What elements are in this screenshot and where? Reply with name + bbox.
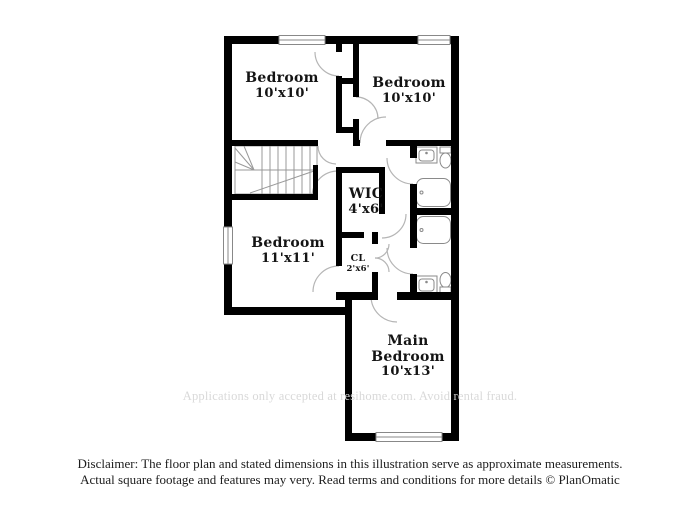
room-name: Bedroom [251, 236, 325, 252]
room-label-bedroom-middle-left: Bedroom 11'x11' [251, 236, 325, 266]
window [418, 36, 450, 45]
disclaimer: Disclaimer: The floor plan and stated di… [0, 456, 700, 488]
room-name: WIC [348, 187, 383, 203]
window [224, 227, 233, 264]
window [279, 36, 325, 45]
room-name: Main Bedroom [369, 334, 447, 365]
room-label-closet: CL 2'x6' [346, 254, 369, 274]
floor-plan-page: Bedroom 10'x10' Bedroom 10'x10' Bedroom … [0, 0, 700, 509]
room-dimensions: 2'x6' [346, 265, 369, 275]
bathtub-icon [417, 217, 451, 244]
room-label-main-bedroom: Main Bedroom 10'x13' [369, 334, 447, 380]
disclaimer-line-1: Disclaimer: The floor plan and stated di… [0, 456, 700, 472]
room-label-bedroom-top-left: Bedroom 10'x10' [245, 71, 319, 101]
bathroom-fixtures [416, 147, 451, 293]
room-label-wic: WIC 4'x6' [348, 187, 383, 217]
sink-icon [416, 147, 437, 163]
room-name: Bedroom [372, 76, 446, 92]
room-name: Bedroom [245, 71, 319, 87]
room-label-bedroom-top-right: Bedroom 10'x10' [372, 76, 446, 106]
window [376, 433, 442, 442]
toilet-icon [440, 273, 451, 294]
sink-icon [416, 276, 437, 293]
room-dimensions: 10'x13' [369, 365, 447, 380]
watermark-text: Applications only accepted at resihome.c… [0, 389, 700, 404]
room-dimensions: 10'x10' [245, 87, 319, 102]
stairs [235, 146, 317, 194]
toilet-icon [440, 147, 451, 168]
room-dimensions: 10'x10' [372, 92, 446, 107]
room-dimensions: 11'x11' [251, 252, 325, 267]
disclaimer-line-2: Actual square footage and features may v… [0, 472, 700, 488]
room-dimensions: 4'x6' [348, 203, 383, 218]
bathtub-icon [417, 179, 451, 207]
